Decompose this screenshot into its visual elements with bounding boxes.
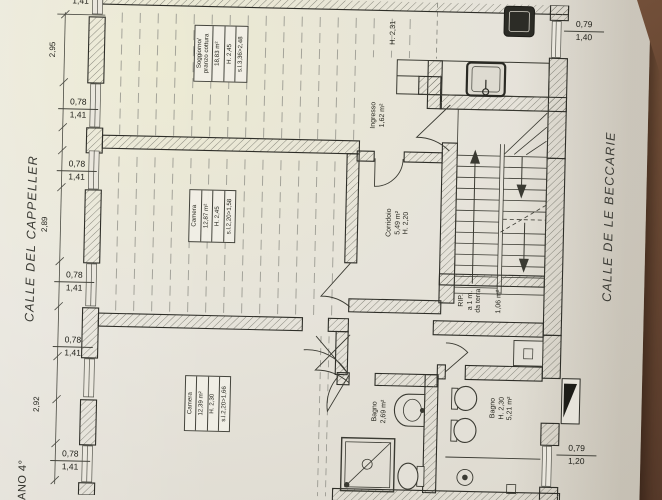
staircase [454,109,548,295]
room-label-rip: RIP. a 1 m. da terra [453,279,488,322]
floor-label: PIANO 4° [15,450,31,500]
toilet-fixture-small-bath [398,463,425,490]
dim-span-295: 2,95 [47,34,59,64]
washer-fixture [445,457,541,494]
photo-frame: dina [0,0,662,500]
dim-pair-top: 1,41 [57,0,103,7]
floor-plan-paper: dina [0,0,651,500]
kitchen-sink [467,62,506,96]
dim-pair-top-right: 0,79 1,40 [561,20,607,44]
room-label-camera-bottom: Camera 12,39 m² H. 2,30 s.l.2,20>1,66 [184,375,231,432]
dim-pair-5: 0,78 1,41 [47,449,93,473]
room-label-corridoio: Corridoio 5,49 m² H. 2,20 [381,202,416,243]
room-label-camera-mid: Camera 12,87 m² H. 2,45 s.l.2,20>1,58 [188,189,236,243]
dim-pair-1: 0,78 1,41 [55,97,101,121]
room-label-rip-area: 1,06 m² [494,282,506,322]
floor-plan-drawing: dina [0,0,662,500]
bidet-fixture [451,418,477,443]
bathroom-sink-fixture [394,394,425,427]
wall-cabinet [513,341,543,367]
dim-span-289: 2,89 [39,209,51,239]
shower-fixture [341,438,395,492]
room-label-bagno-small: Bagno 2,69 m² [369,393,392,429]
stair-height-annotation: H. 2,31 [387,15,400,51]
toilet-fixture-large-bath [451,386,477,411]
window-marker-triangle [561,379,580,424]
dim-pair-4: 0,78 1,41 [50,335,96,359]
stove-appliance [504,6,535,37]
dim-span-292: 2,92 [31,389,43,419]
floor-plan: dina [0,0,662,500]
dim-pair-bottom-right: 0,79 1,20 [553,443,599,467]
room-label-bagno-large: Bagno H. 2,30 5,21 m² [487,390,518,427]
room-label-ingresso: Ingresso 1,62 m² [368,97,391,133]
dim-pair-3: 0,78 1,41 [51,270,97,294]
room-label-soggiorno: Soggiorno/ pranzo cottura 18,83 m² H. 2,… [193,25,248,83]
stair-up-arrow [467,149,480,283]
dim-pair-2: 0,78 1,41 [54,159,100,183]
